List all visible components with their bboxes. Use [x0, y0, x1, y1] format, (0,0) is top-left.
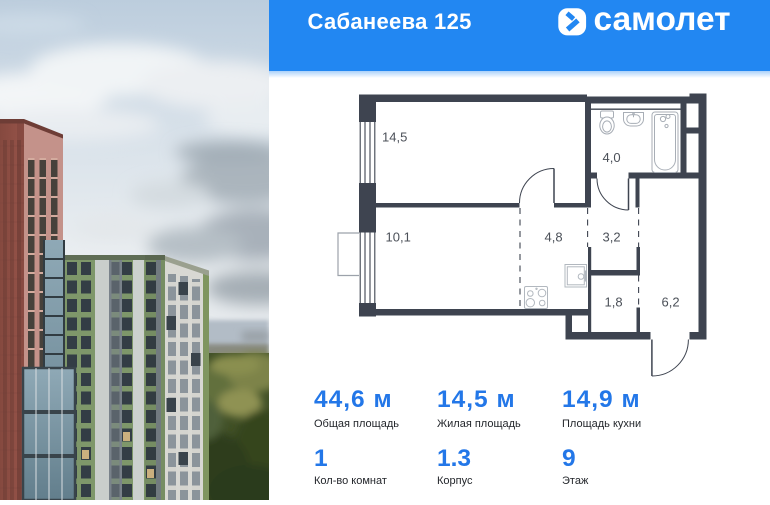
svg-text:14,5: 14,5 [382, 130, 407, 145]
svg-text:6,2: 6,2 [662, 295, 680, 310]
svg-text:3,2: 3,2 [603, 230, 621, 245]
svg-text:10,1: 10,1 [386, 230, 411, 245]
svg-text:4,0: 4,0 [603, 150, 621, 165]
svg-text:1,8: 1,8 [605, 295, 623, 310]
svg-text:4,8: 4,8 [545, 230, 563, 245]
